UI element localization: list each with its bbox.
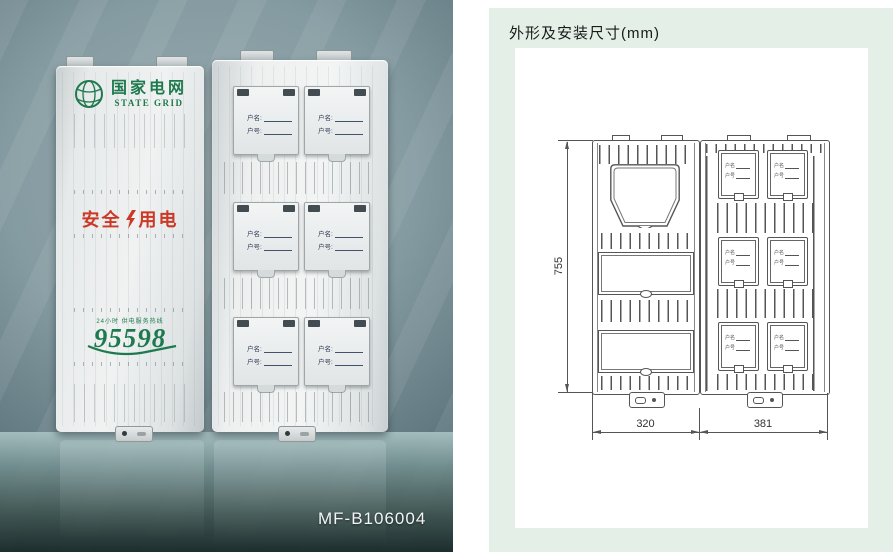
drawing-breaker-panel [598, 252, 694, 295]
corner-clip-icon [283, 89, 295, 96]
single-meter-box: 国家电网 STATE GRID 安全 用电 24小时 供电服务热线 [56, 66, 204, 432]
hotline-swoosh-icon [86, 342, 178, 358]
drawing-vent-ribs [717, 374, 821, 390]
reflection-right-box [214, 440, 386, 546]
panel-title: 外形及安装尺寸(mm) [509, 22, 660, 43]
six-meter-box: 户名: 户号: 户名: 户号: 户名: 户号: [212, 60, 388, 432]
corner-clip-icon [237, 89, 249, 96]
state-grid-logo: 国家电网 STATE GRID [56, 78, 204, 110]
vent-ticks [74, 362, 186, 366]
arrowhead-icon [565, 384, 569, 392]
corner-clip-icon [354, 89, 366, 96]
cover-notch [328, 270, 346, 278]
vent-ribs [74, 114, 186, 148]
drawing-vent-ribs [717, 203, 821, 233]
vent-ribs [224, 162, 376, 194]
meter-cover: 户名: 户号: [304, 202, 370, 271]
arrowhead-icon [700, 430, 708, 434]
vent-ribs [74, 384, 186, 422]
vent-ribs [224, 278, 376, 309]
corner-clip-icon [308, 89, 320, 96]
meter-cover: 户名: 户号: [304, 86, 370, 155]
corner-clip-icon [354, 205, 366, 212]
dimension-width-right: 381 [699, 418, 827, 430]
brand-text: 国家电网 STATE GRID [111, 80, 187, 108]
arrowhead-icon [691, 430, 699, 434]
drawing-bottom-latch [747, 392, 783, 408]
drawing-vent-ribs [601, 376, 689, 390]
arrowhead-icon [565, 141, 569, 149]
dimension-width-left: 320 [592, 418, 699, 430]
drawing-meter-window-small: 户名 户号 [718, 237, 759, 286]
drawing-vent-ribs [601, 233, 689, 249]
drawing-vent-ribs [599, 145, 691, 164]
drawing-meter-window-small: 户名 户号 [718, 150, 759, 199]
dimension-line-horizontal [592, 432, 828, 433]
drawing-vent-ribs [717, 289, 821, 318]
dimension-panel: 外形及安装尺寸(mm) [489, 8, 893, 552]
corner-clip-icon [308, 205, 320, 212]
vent-ticks [74, 190, 186, 194]
bottom-latch [115, 426, 153, 442]
meter-cover: 户名: 户号: [233, 86, 299, 155]
screenshot-root: 国家电网 STATE GRID 安全 用电 24小时 供电服务热线 [0, 0, 893, 552]
brand-name-cn: 国家电网 [111, 80, 187, 98]
drawing-vent-ribs [601, 300, 689, 322]
drawing-meter-window-small: 户名 户号 [767, 237, 808, 286]
corner-clip-icon [308, 320, 320, 327]
slogan-left: 安全 [82, 206, 122, 232]
drawing-canvas: 户名 户号 户名 户号 户名 户号 户名 户号 户名 户号 户名 [515, 48, 868, 528]
vent-ribs [224, 392, 376, 422]
cover-notch [257, 154, 275, 162]
dimension-line-vertical [567, 142, 568, 392]
meter-cover: 户名: 户号: [233, 317, 299, 386]
meter-cover: 户名: 户号: [304, 317, 370, 386]
vent-ticks [74, 234, 186, 238]
drawing-vent-ribs [813, 156, 822, 391]
drawing-bottom-latch [629, 392, 665, 408]
corner-clip-icon [283, 205, 295, 212]
hotline-number: 95598 [94, 325, 167, 352]
arrowhead-icon [593, 430, 601, 434]
drawing-meter-window-small: 户名 户号 [767, 322, 808, 371]
model-number: MF-B106004 [318, 509, 448, 529]
cover-notch [257, 270, 275, 278]
corner-clip-icon [237, 320, 249, 327]
corner-clip-icon [283, 320, 295, 327]
reflection-left-box [60, 440, 204, 540]
slogan-right: 用电 [139, 206, 179, 232]
corner-clip-icon [354, 320, 366, 327]
drawing-vent-ribs [706, 156, 715, 391]
cover-notch [328, 154, 346, 162]
lightning-icon [125, 210, 136, 229]
drawing-meter-window [610, 164, 680, 228]
extension-line [558, 140, 593, 141]
hotline-logo: 24小时 供电服务热线 95598 [56, 316, 204, 352]
arrowhead-icon [819, 430, 827, 434]
vent-ticks [74, 308, 186, 312]
extension-line [558, 392, 593, 393]
product-photo: 国家电网 STATE GRID 安全 用电 24小时 供电服务热线 [0, 0, 453, 552]
drawing-breaker-panel [598, 330, 694, 373]
corner-clip-icon [237, 205, 249, 212]
meter-cover: 户名: 户号: [233, 202, 299, 271]
dimension-height: 755 [553, 246, 565, 286]
bottom-latch [278, 426, 316, 442]
safety-slogan: 安全 用电 [56, 206, 204, 232]
drawing-meter-window-small: 户名 户号 [718, 322, 759, 371]
state-grid-logo-icon [73, 78, 105, 110]
drawing-meter-window-small: 户名 户号 [767, 150, 808, 199]
brand-name-en: STATE GRID [115, 98, 184, 108]
